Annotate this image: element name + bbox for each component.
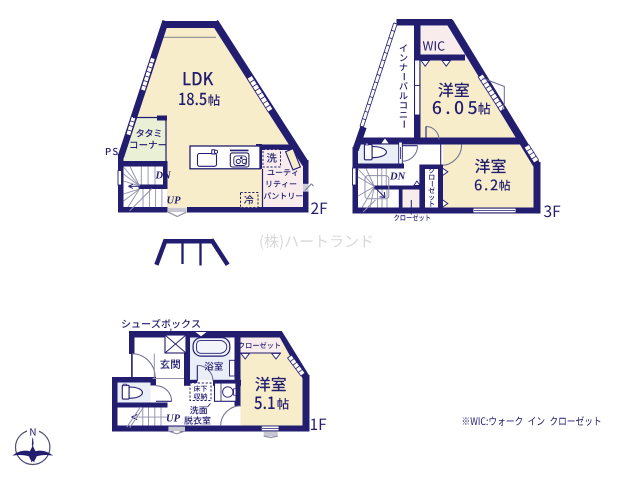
- svg-text:DN: DN: [389, 172, 406, 183]
- svg-text:DN: DN: [155, 171, 172, 182]
- svg-text:UP: UP: [166, 414, 181, 425]
- svg-text:UP: UP: [167, 196, 182, 207]
